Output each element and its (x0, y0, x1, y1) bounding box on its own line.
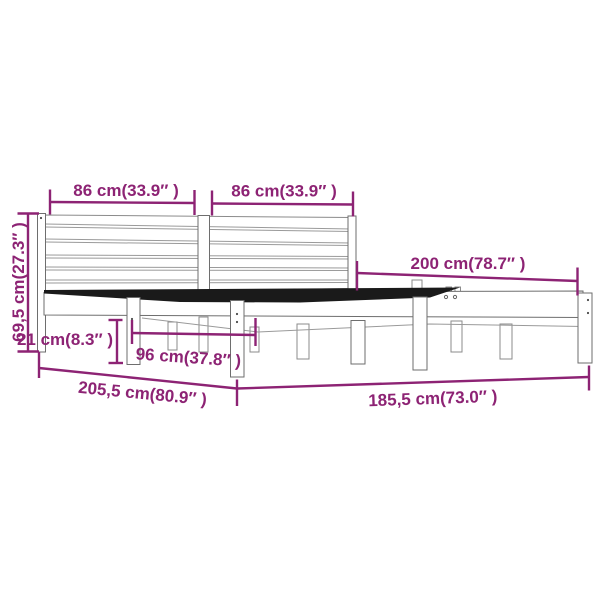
screw-dot (587, 299, 589, 301)
screw-dot (587, 312, 589, 314)
footend-corner-post (578, 293, 592, 363)
dimension-label-clearance: 21 cm(8.3″ ) (17, 330, 113, 349)
bed-leg (413, 297, 427, 370)
dimension-label-total-width: 185,5 cm(73.0″ ) (368, 387, 498, 410)
dimension-headboard-left: 86 cm(33.9″ ) (50, 181, 195, 215)
screw-dot (236, 321, 238, 323)
screw-dot (40, 217, 42, 219)
bed-frame-drawing (38, 214, 593, 378)
dimension-label-headboard-left: 86 cm(33.9″ ) (73, 181, 178, 200)
dimension-label-headboard-right: 86 cm(33.9″ ) (231, 182, 336, 201)
dimension-label-headboard-height: 69,5 cm(27.3″ ) (9, 222, 28, 342)
bed-leg (500, 324, 512, 359)
dimension-headboard-right: 86 cm(33.9″ ) (212, 182, 353, 217)
bed-frame-diagram: 86 cm(33.9″ ) 86 cm(33.9″ ) 200 cm(78.7″… (0, 0, 600, 600)
screw-dot (236, 313, 238, 315)
screw-dot (131, 318, 133, 320)
headboard-middle-post (198, 216, 210, 300)
bed-leg (451, 321, 462, 352)
dimension-total-width: 185,5 cm(73.0″ ) (237, 366, 589, 411)
bed-leg (351, 321, 365, 365)
dimension-clearance: 21 cm(8.3″ ) (17, 320, 123, 363)
screw-ring (444, 295, 447, 298)
dimension-label-inner-length: 200 cm(78.7″ ) (411, 254, 526, 273)
product-dimension-image: 86 cm(33.9″ ) 86 cm(33.9″ ) 200 cm(78.7″… (0, 0, 600, 600)
headboard-right-post (348, 216, 356, 294)
screw-ring (453, 295, 456, 298)
dimension-label-leg-spacing: 96 cm(37.8″ ) (135, 344, 242, 370)
